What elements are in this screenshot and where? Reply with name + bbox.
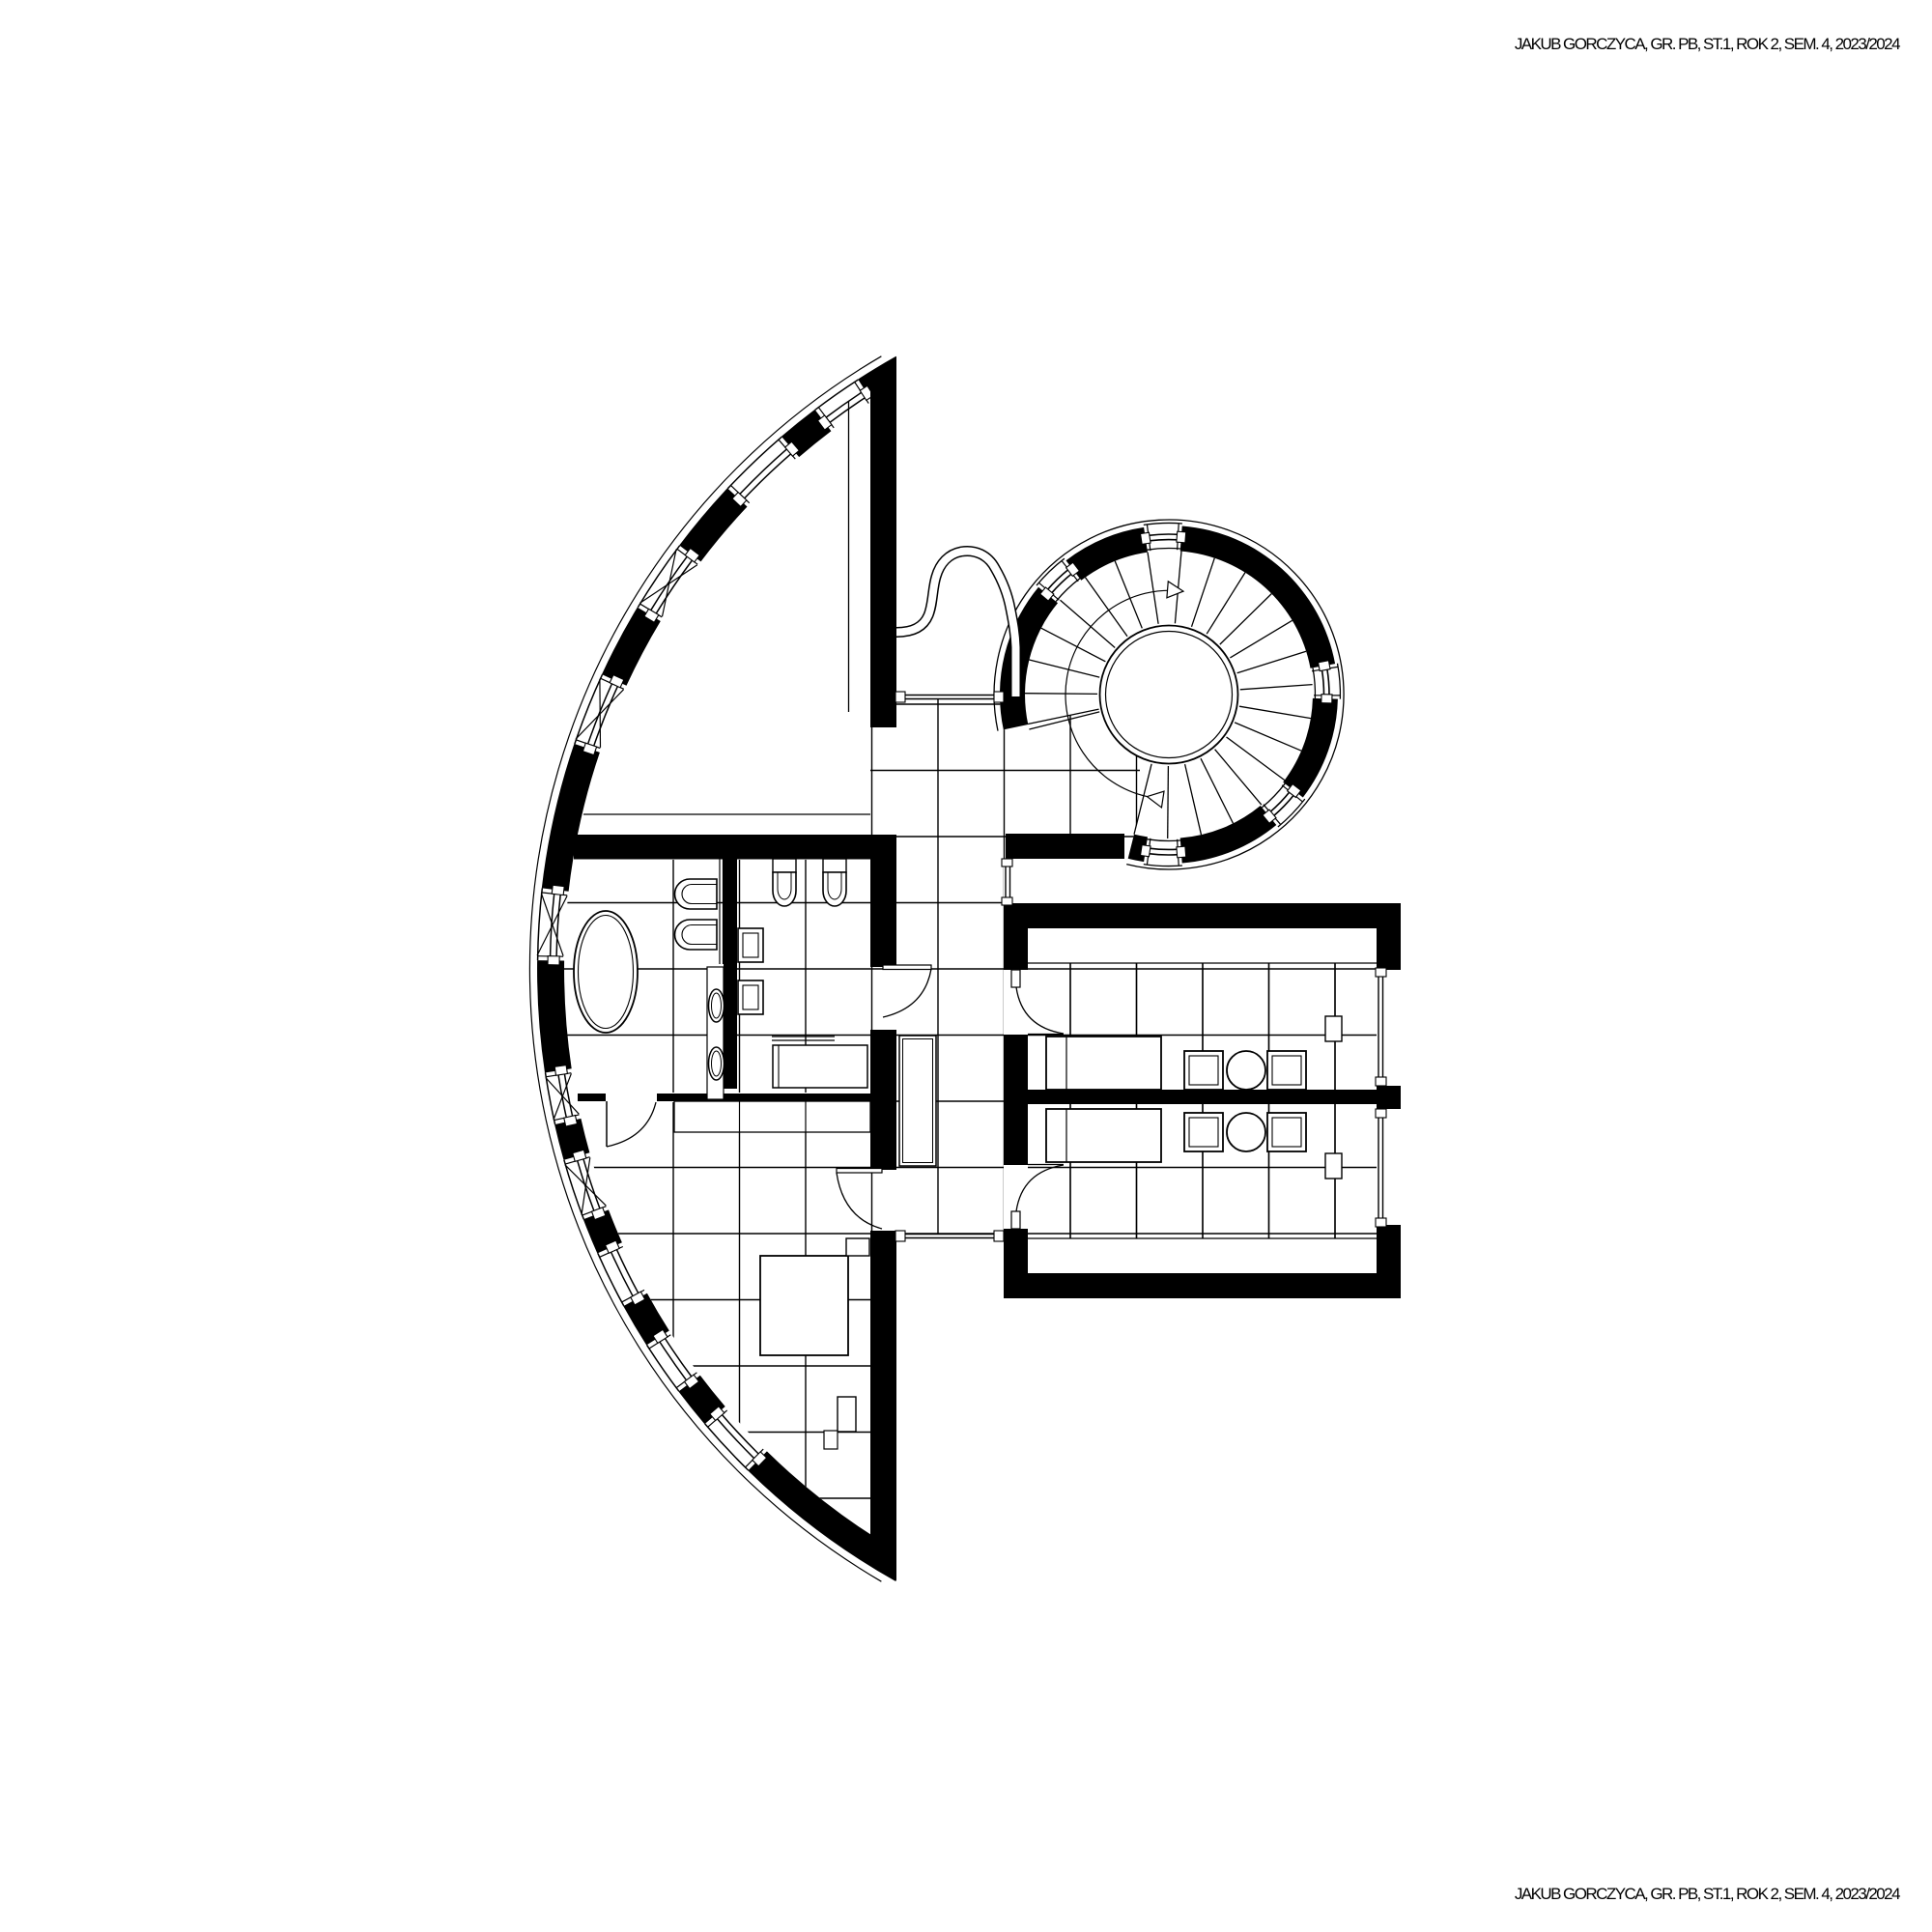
svg-text:JAKUB GORCZYCA, GR. PB, ST.1,: JAKUB GORCZYCA, GR. PB, ST.1, ROK 2, SEM…: [1515, 1885, 1900, 1903]
svg-text:JAKUB GORCZYCA, GR. PB, ST.1,: JAKUB GORCZYCA, GR. PB, ST.1, ROK 2, SEM…: [1515, 35, 1900, 53]
